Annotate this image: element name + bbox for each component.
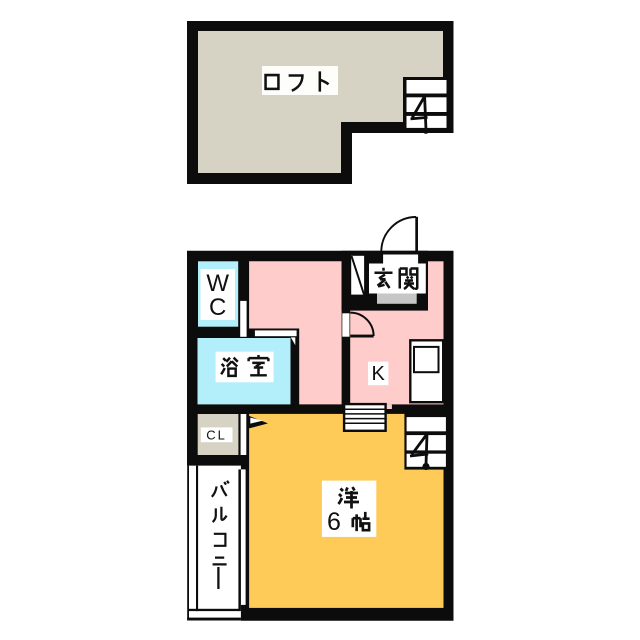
svg-text:CL: CL [206,428,227,443]
svg-text:C: C [209,294,226,321]
svg-text:W: W [206,270,229,297]
svg-text:6: 6 [327,508,341,536]
svg-text:K: K [372,363,386,385]
